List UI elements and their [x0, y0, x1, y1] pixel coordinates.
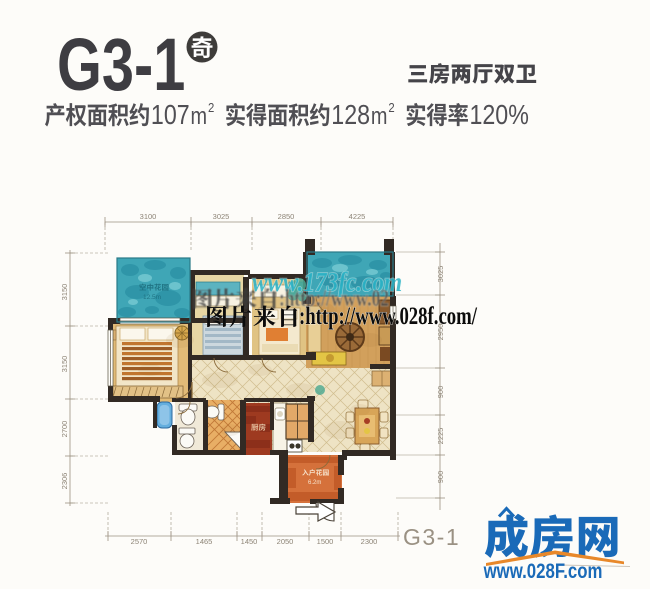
svg-text:2: 2 [388, 100, 395, 115]
svg-text:1465: 1465 [196, 537, 213, 546]
svg-text:6.2m: 6.2m [308, 480, 321, 486]
svg-text:3150: 3150 [60, 356, 69, 373]
svg-text:m: m [371, 102, 388, 129]
svg-text:1500: 1500 [317, 537, 334, 546]
svg-text:www.028F.com: www.028F.com [483, 560, 603, 583]
svg-text:2306: 2306 [60, 473, 69, 490]
svg-text:G3-1: G3-1 [57, 24, 185, 107]
svg-text:107: 107 [151, 100, 190, 130]
svg-text:G3-1: G3-1 [403, 524, 460, 550]
svg-text:2050: 2050 [277, 537, 294, 546]
svg-text:2300: 2300 [361, 537, 378, 546]
svg-text:2570: 2570 [131, 537, 148, 546]
svg-text:3025: 3025 [213, 212, 230, 221]
svg-text:4225: 4225 [349, 212, 366, 221]
svg-text:900: 900 [436, 471, 445, 484]
svg-text:3100: 3100 [140, 212, 157, 221]
svg-text:2225: 2225 [436, 428, 445, 445]
svg-text:2: 2 [208, 100, 215, 115]
svg-text:m: m [191, 102, 208, 129]
svg-text:3025: 3025 [436, 266, 445, 283]
svg-text:128: 128 [331, 100, 370, 130]
svg-text:2700: 2700 [60, 421, 69, 438]
svg-text:3150: 3150 [60, 284, 69, 301]
svg-text:120%: 120% [469, 100, 528, 130]
svg-text:2850: 2850 [278, 212, 295, 221]
svg-text:900: 900 [436, 386, 445, 399]
svg-text:1450: 1450 [241, 537, 258, 546]
svg-text:12.5m: 12.5m [143, 294, 161, 301]
svg-text::http://www.028f.com/: :http://www.028f.com/ [299, 301, 478, 329]
